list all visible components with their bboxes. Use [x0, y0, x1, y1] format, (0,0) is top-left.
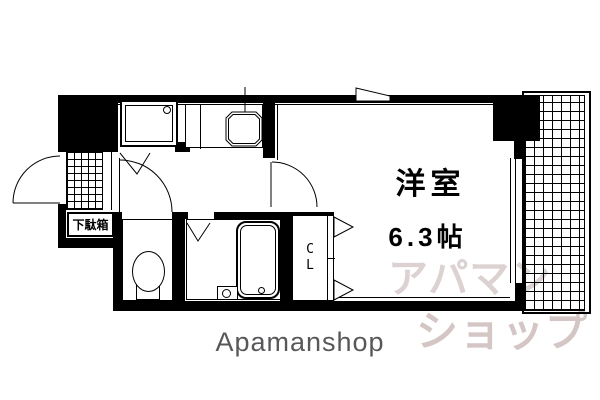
toilet-door-arc — [120, 160, 172, 212]
watermark-line2: ショップ — [416, 298, 588, 359]
floor-plan: 洋室 6.3帖 下駄箱 C L アパマン ショップ Apamanshop — [0, 0, 600, 400]
bath-fold-door-icon — [187, 223, 210, 241]
watermark-line1: アパマン — [388, 246, 551, 304]
closet-letter-c: C — [300, 242, 320, 258]
closet-door-arrow-bottom-icon — [334, 280, 353, 300]
kitchen-sink — [226, 112, 262, 146]
closet-door-arrow-top-icon — [334, 217, 353, 237]
room-door-arc — [272, 162, 317, 207]
entrance-door-arc — [13, 156, 60, 203]
washer-fold-door-icon — [120, 153, 150, 174]
room-name-label: 洋室 — [373, 159, 488, 203]
vent-window-icon — [356, 88, 390, 101]
closet-letter-l: L — [300, 258, 320, 274]
closet-label: C L — [300, 242, 320, 274]
